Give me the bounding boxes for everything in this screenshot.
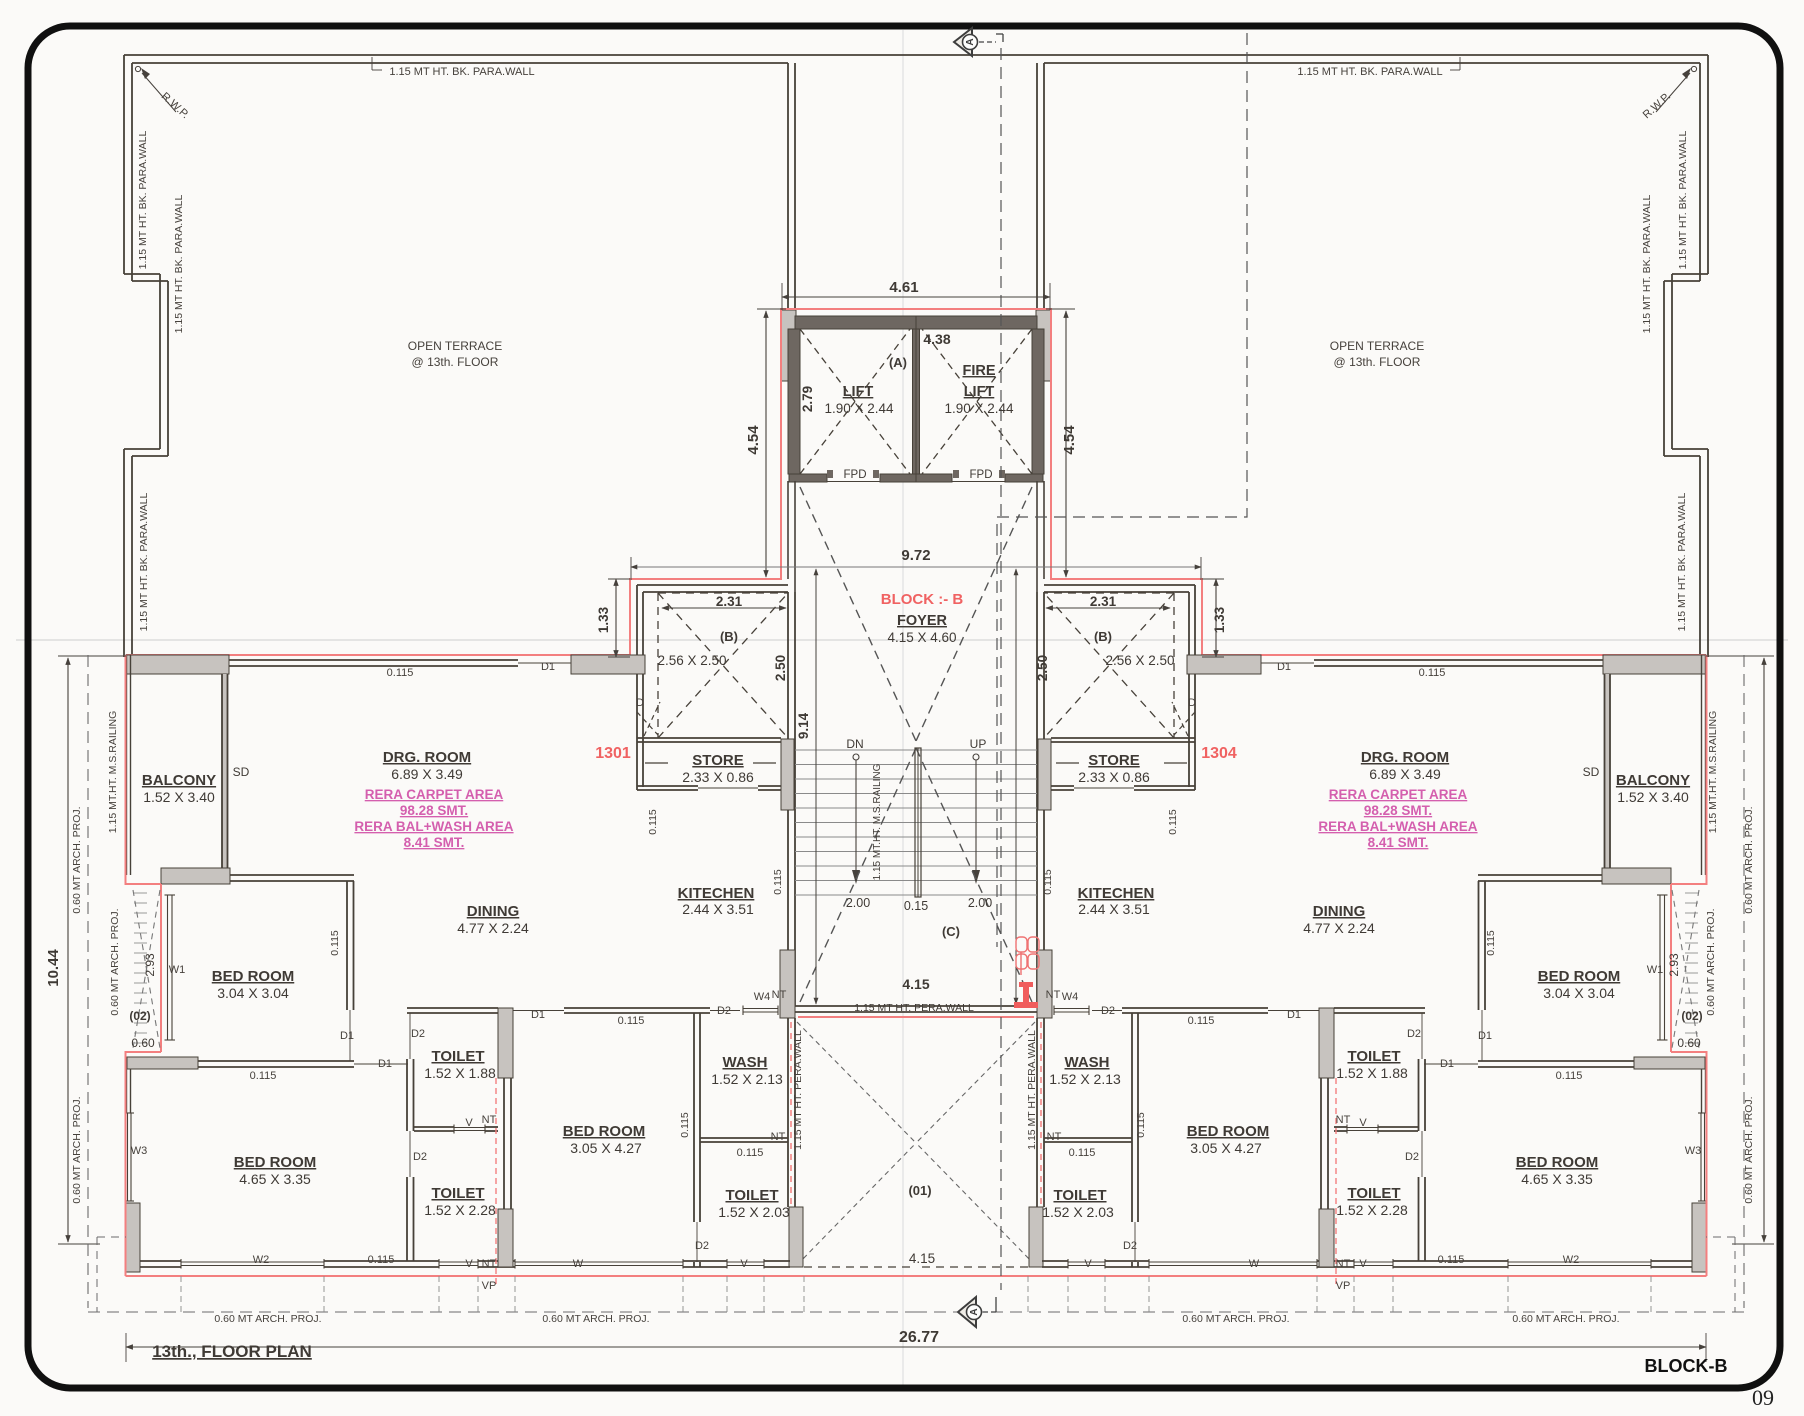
svg-text:W1: W1 — [169, 964, 186, 976]
svg-text:4.65 X 3.35: 4.65 X 3.35 — [1521, 1171, 1593, 1187]
svg-text:NT: NT — [772, 989, 787, 1001]
svg-text:1.52 X 2.13: 1.52 X 2.13 — [711, 1071, 783, 1087]
svg-text:0.60 MT ARCH. PROJ.: 0.60 MT ARCH. PROJ. — [1182, 1313, 1289, 1325]
svg-text:4.15: 4.15 — [902, 976, 929, 992]
svg-text:WASH: WASH — [723, 1054, 768, 1071]
svg-text:LIFT: LIFT — [843, 384, 874, 400]
svg-text:3.05 X 4.27: 3.05 X 4.27 — [570, 1140, 642, 1156]
svg-text:(C): (C) — [942, 924, 960, 939]
svg-text:W3: W3 — [131, 1145, 148, 1157]
svg-text:0.60 MT ARCH. PROJ.: 0.60 MT ARCH. PROJ. — [71, 806, 83, 913]
svg-text:2.31: 2.31 — [716, 594, 743, 609]
svg-text:BED ROOM: BED ROOM — [1187, 1123, 1270, 1140]
svg-text:RERA CARPET AREA: RERA CARPET AREA — [365, 787, 504, 802]
svg-text:SD: SD — [233, 765, 250, 779]
svg-text:0.115: 0.115 — [329, 930, 341, 956]
svg-text:NT: NT — [482, 1114, 497, 1126]
svg-text:1.52 X 2.28: 1.52 X 2.28 — [424, 1202, 496, 1218]
svg-text:TOILET: TOILET — [1347, 1185, 1400, 1202]
svg-text:SD: SD — [1583, 765, 1600, 779]
svg-text:NT: NT — [1336, 1258, 1351, 1270]
svg-text:1.15 MT.HT. M.S.RAILING: 1.15 MT.HT. M.S.RAILING — [872, 763, 883, 880]
svg-text:0.60: 0.60 — [131, 1036, 155, 1050]
svg-text:KITECHEN: KITECHEN — [678, 885, 755, 902]
svg-text:9.14: 9.14 — [796, 712, 811, 739]
svg-text:4.65 X 3.35: 4.65 X 3.35 — [239, 1171, 311, 1187]
svg-text:BED ROOM: BED ROOM — [1516, 1154, 1599, 1171]
svg-text:1.15 MT.HT. M.S.RAILING: 1.15 MT.HT. M.S.RAILING — [1707, 711, 1719, 834]
svg-text:0.115: 0.115 — [618, 1015, 645, 1027]
svg-text:D2: D2 — [411, 1028, 425, 1040]
svg-text:0.60 MT ARCH. PROJ.: 0.60 MT ARCH. PROJ. — [214, 1313, 321, 1325]
svg-text:W4: W4 — [1062, 991, 1079, 1003]
svg-text:D1: D1 — [378, 1058, 392, 1070]
svg-text:0.60 MT ARCH. PROJ.: 0.60 MT ARCH. PROJ. — [109, 908, 121, 1015]
svg-text:0.15: 0.15 — [904, 899, 928, 913]
svg-text:D1: D1 — [531, 1009, 545, 1021]
svg-text:BALCONY: BALCONY — [1616, 772, 1690, 789]
svg-text:RERA BAL+WASH AREA: RERA BAL+WASH AREA — [354, 819, 513, 834]
svg-text:D1: D1 — [541, 661, 555, 673]
svg-text:4.54: 4.54 — [745, 425, 762, 455]
svg-text:1301: 1301 — [595, 745, 631, 762]
svg-text:KITECHEN: KITECHEN — [1078, 885, 1155, 902]
svg-text:4.15: 4.15 — [909, 1251, 935, 1266]
svg-text:D: D — [636, 697, 644, 709]
svg-text:D1: D1 — [1287, 1009, 1301, 1021]
svg-text:NT: NT — [1046, 989, 1061, 1001]
svg-text:6.89 X 3.49: 6.89 X 3.49 — [1369, 766, 1441, 782]
svg-text:NT: NT — [1047, 1131, 1062, 1143]
svg-text:0.115: 0.115 — [1042, 869, 1054, 895]
svg-text:@ 13th. FLOOR: @ 13th. FLOOR — [412, 355, 499, 369]
svg-text:1.15 MT HT. BK. PARA.WALL: 1.15 MT HT. BK. PARA.WALL — [1676, 492, 1688, 631]
svg-text:D2: D2 — [1123, 1240, 1137, 1252]
svg-text:1.15 MT HT. PERA.WALL: 1.15 MT HT. PERA.WALL — [792, 1030, 804, 1150]
svg-text:2.79: 2.79 — [800, 386, 815, 412]
svg-text:(A): (A) — [889, 355, 907, 370]
svg-text:D2: D2 — [1407, 1028, 1421, 1040]
svg-text:0.115: 0.115 — [368, 1254, 395, 1266]
svg-text:0.60 MT ARCH. PROJ.: 0.60 MT ARCH. PROJ. — [1743, 806, 1755, 913]
svg-text:BED ROOM: BED ROOM — [1538, 968, 1621, 985]
svg-text:0.60 MT ARCH. PROJ.: 0.60 MT ARCH. PROJ. — [1743, 1096, 1755, 1203]
svg-text:2.00: 2.00 — [846, 896, 870, 910]
svg-text:W2: W2 — [253, 1254, 270, 1266]
svg-text:NT: NT — [482, 1258, 497, 1270]
svg-text:2.31: 2.31 — [1090, 594, 1117, 609]
svg-text:1.90 X 2.44: 1.90 X 2.44 — [824, 401, 894, 416]
svg-text:0.115: 0.115 — [1167, 809, 1179, 835]
svg-text:BED ROOM: BED ROOM — [563, 1123, 646, 1140]
svg-text:0.115: 0.115 — [1419, 667, 1446, 679]
svg-text:RERA CARPET AREA: RERA CARPET AREA — [1329, 787, 1468, 802]
svg-text:09: 09 — [1752, 1385, 1774, 1410]
svg-text:STORE: STORE — [1088, 752, 1139, 769]
svg-text:0.60 MT ARCH. PROJ.: 0.60 MT ARCH. PROJ. — [1705, 908, 1717, 1015]
svg-text:D1: D1 — [1478, 1030, 1492, 1042]
svg-text:0.115: 0.115 — [772, 869, 784, 895]
svg-text:3.04 X 3.04: 3.04 X 3.04 — [1543, 985, 1615, 1001]
svg-text:STORE: STORE — [692, 752, 743, 769]
svg-text:(B): (B) — [1094, 629, 1112, 644]
svg-text:1.15 MT HT. BK. PARA.WALL: 1.15 MT HT. BK. PARA.WALL — [389, 66, 534, 78]
svg-text:(B): (B) — [720, 629, 738, 644]
svg-text:D1: D1 — [340, 1030, 354, 1042]
svg-text:RERA BAL+WASH AREA: RERA BAL+WASH AREA — [1318, 819, 1477, 834]
svg-text:V: V — [465, 1117, 473, 1129]
svg-text:4.77 X 2.24: 4.77 X 2.24 — [457, 920, 529, 936]
svg-text:98.28 SMT.: 98.28 SMT. — [1364, 803, 1432, 818]
svg-text:0.115: 0.115 — [250, 1070, 277, 1082]
svg-text:4.77 X 2.24: 4.77 X 2.24 — [1303, 920, 1375, 936]
svg-text:1.52 X 3.40: 1.52 X 3.40 — [143, 789, 215, 805]
svg-text:D: D — [1188, 697, 1196, 709]
svg-text:2.93: 2.93 — [1667, 953, 1681, 977]
svg-text:13th., FLOOR PLAN: 13th., FLOOR PLAN — [152, 1342, 312, 1361]
svg-text:10.44: 10.44 — [45, 949, 62, 987]
svg-text:1.15 MT HT. BK. PARA.WALL: 1.15 MT HT. BK. PARA.WALL — [1297, 66, 1442, 78]
svg-text:WASH: WASH — [1065, 1054, 1110, 1071]
svg-text:0.115: 0.115 — [1485, 930, 1497, 956]
svg-text:2.44 X 3.51: 2.44 X 3.51 — [1078, 901, 1150, 917]
svg-text:@ 13th. FLOOR: @ 13th. FLOOR — [1334, 355, 1421, 369]
svg-text:1.52 X 1.88: 1.52 X 1.88 — [424, 1065, 496, 1081]
svg-text:4.61: 4.61 — [889, 279, 918, 296]
svg-text:D2: D2 — [717, 1005, 731, 1017]
svg-text:0.115: 0.115 — [1556, 1070, 1583, 1082]
svg-text:NT: NT — [771, 1131, 786, 1143]
svg-text:1.52 X 3.40: 1.52 X 3.40 — [1617, 789, 1689, 805]
svg-text:1.15 MT HT. BK. PARA.WALL: 1.15 MT HT. BK. PARA.WALL — [137, 130, 149, 269]
svg-text:26.77: 26.77 — [899, 1329, 939, 1346]
svg-text:1.15 MT HT. BK. PARA.WALL: 1.15 MT HT. BK. PARA.WALL — [138, 492, 150, 631]
svg-text:V: V — [1359, 1117, 1367, 1129]
svg-text:1.52 X 1.88: 1.52 X 1.88 — [1336, 1065, 1408, 1081]
svg-text:1.33: 1.33 — [1212, 606, 1227, 633]
svg-text:98.28 SMT.: 98.28 SMT. — [400, 803, 468, 818]
svg-text:4.15 X 4.60: 4.15 X 4.60 — [887, 630, 956, 645]
svg-text:1.90 X 2.44: 1.90 X 2.44 — [944, 401, 1014, 416]
svg-text:9.72: 9.72 — [901, 547, 930, 564]
svg-text:D2: D2 — [413, 1151, 427, 1163]
svg-text:(02): (02) — [1681, 1009, 1702, 1023]
svg-text:FPD: FPD — [844, 469, 867, 481]
svg-text:W: W — [1249, 1258, 1260, 1270]
svg-text:TOILET: TOILET — [431, 1185, 484, 1202]
svg-text:1.52 X 2.28: 1.52 X 2.28 — [1336, 1202, 1408, 1218]
svg-text:A: A — [965, 38, 976, 45]
svg-text:0.115: 0.115 — [1188, 1015, 1215, 1027]
svg-text:BALCONY: BALCONY — [142, 772, 216, 789]
svg-text:DRG. ROOM: DRG. ROOM — [1361, 749, 1449, 766]
svg-text:VP: VP — [1336, 1280, 1351, 1292]
svg-text:FIRE: FIRE — [962, 363, 995, 379]
svg-text:VP: VP — [482, 1280, 497, 1292]
svg-text:W1: W1 — [1647, 964, 1664, 976]
svg-text:2.56 X 2.50: 2.56 X 2.50 — [657, 653, 726, 668]
svg-text:V: V — [1359, 1258, 1367, 1270]
svg-text:1.33: 1.33 — [596, 606, 611, 633]
svg-text:1.52 X 2.13: 1.52 X 2.13 — [1049, 1071, 1121, 1087]
svg-text:W: W — [573, 1258, 584, 1270]
svg-text:W2: W2 — [1563, 1254, 1580, 1266]
svg-text:1.15 MT HT. BK. PARA.WALL: 1.15 MT HT. BK. PARA.WALL — [173, 194, 185, 333]
svg-text:D2: D2 — [1405, 1151, 1419, 1163]
svg-text:0.115: 0.115 — [679, 1112, 691, 1138]
svg-text:2.93: 2.93 — [143, 953, 157, 977]
svg-text:4.38: 4.38 — [923, 331, 950, 347]
svg-text:BLOCK :- B: BLOCK :- B — [881, 591, 964, 608]
svg-text:TOILET: TOILET — [1347, 1048, 1400, 1065]
svg-text:FOYER: FOYER — [897, 613, 947, 629]
svg-text:2.33 X 0.86: 2.33 X 0.86 — [1078, 769, 1150, 785]
svg-text:0.115: 0.115 — [737, 1147, 764, 1159]
svg-text:DINING: DINING — [1313, 903, 1366, 920]
svg-text:2.00: 2.00 — [968, 896, 992, 910]
svg-text:D2: D2 — [695, 1240, 709, 1252]
svg-text:D1: D1 — [1277, 661, 1291, 673]
svg-text:V: V — [465, 1258, 473, 1270]
svg-text:1.52 X 2.03: 1.52 X 2.03 — [1042, 1204, 1114, 1220]
svg-text:BED ROOM: BED ROOM — [234, 1154, 317, 1171]
svg-text:OPEN TERRACE: OPEN TERRACE — [1330, 339, 1424, 353]
svg-text:4.54: 4.54 — [1061, 425, 1078, 455]
svg-text:3.04 X 3.04: 3.04 X 3.04 — [217, 985, 289, 1001]
svg-text:1.15 MT.HT. M.S.RAILING: 1.15 MT.HT. M.S.RAILING — [107, 711, 119, 834]
svg-text:6.89 X 3.49: 6.89 X 3.49 — [391, 766, 463, 782]
svg-text:1.15 MT HT. BK. PARA.WALL: 1.15 MT HT. BK. PARA.WALL — [1641, 194, 1653, 333]
svg-text:LIFT: LIFT — [964, 384, 995, 400]
svg-text:(02): (02) — [129, 1009, 150, 1023]
svg-text:1.15 MT HT. BK. PARA.WALL: 1.15 MT HT. BK. PARA.WALL — [1677, 130, 1689, 269]
svg-text:2.33 X 0.86: 2.33 X 0.86 — [682, 769, 754, 785]
svg-text:BLOCK-B: BLOCK-B — [1645, 1356, 1728, 1376]
svg-text:1.15 MT HT. PERA.WALL: 1.15 MT HT. PERA.WALL — [1026, 1030, 1038, 1150]
svg-text:2.44 X 3.51: 2.44 X 3.51 — [682, 901, 754, 917]
svg-text:0.115: 0.115 — [1438, 1254, 1465, 1266]
svg-text:0.115: 0.115 — [1069, 1147, 1096, 1159]
svg-text:DRG. ROOM: DRG. ROOM — [383, 749, 471, 766]
svg-text:1.52 X 2.03: 1.52 X 2.03 — [718, 1204, 790, 1220]
svg-text:OPEN TERRACE: OPEN TERRACE — [408, 339, 502, 353]
svg-text:FPD: FPD — [970, 469, 993, 481]
svg-text:0.115: 0.115 — [387, 667, 414, 679]
svg-text:TOILET: TOILET — [725, 1187, 778, 1204]
svg-text:V: V — [1084, 1258, 1092, 1270]
svg-text:8.41 SMT.: 8.41 SMT. — [404, 835, 465, 850]
svg-text:BED ROOM: BED ROOM — [212, 968, 295, 985]
svg-text:3.05 X 4.27: 3.05 X 4.27 — [1190, 1140, 1262, 1156]
svg-text:0.60: 0.60 — [1677, 1036, 1701, 1050]
svg-text:A: A — [969, 1308, 980, 1315]
svg-text:W4: W4 — [754, 991, 771, 1003]
svg-text:1304: 1304 — [1201, 745, 1237, 762]
svg-text:DINING: DINING — [467, 903, 520, 920]
svg-text:TOILET: TOILET — [1053, 1187, 1106, 1204]
svg-text:0.60 MT ARCH. PROJ.: 0.60 MT ARCH. PROJ. — [71, 1096, 83, 1203]
svg-text:(01): (01) — [908, 1183, 931, 1198]
svg-text:W3: W3 — [1685, 1145, 1702, 1157]
svg-text:DN: DN — [846, 737, 863, 751]
svg-text:2.50: 2.50 — [773, 655, 788, 681]
svg-text:0.115: 0.115 — [1135, 1112, 1147, 1138]
svg-text:D1: D1 — [1440, 1058, 1454, 1070]
svg-text:1.15 MT HT. PERA.WALL: 1.15 MT HT. PERA.WALL — [854, 1002, 974, 1014]
svg-text:8.41 SMT.: 8.41 SMT. — [1368, 835, 1429, 850]
svg-text:0.115: 0.115 — [647, 809, 659, 835]
svg-text:0.60 MT ARCH. PROJ.: 0.60 MT ARCH. PROJ. — [542, 1313, 649, 1325]
svg-text:NT: NT — [1336, 1114, 1351, 1126]
svg-text:UP: UP — [970, 737, 987, 751]
svg-text:V: V — [740, 1258, 748, 1270]
svg-text:TOILET: TOILET — [431, 1048, 484, 1065]
svg-text:D2: D2 — [1101, 1005, 1115, 1017]
svg-text:0.60 MT ARCH. PROJ.: 0.60 MT ARCH. PROJ. — [1512, 1313, 1619, 1325]
svg-text:2.50: 2.50 — [1035, 655, 1050, 681]
svg-text:2.56 X 2.50: 2.56 X 2.50 — [1105, 653, 1174, 668]
